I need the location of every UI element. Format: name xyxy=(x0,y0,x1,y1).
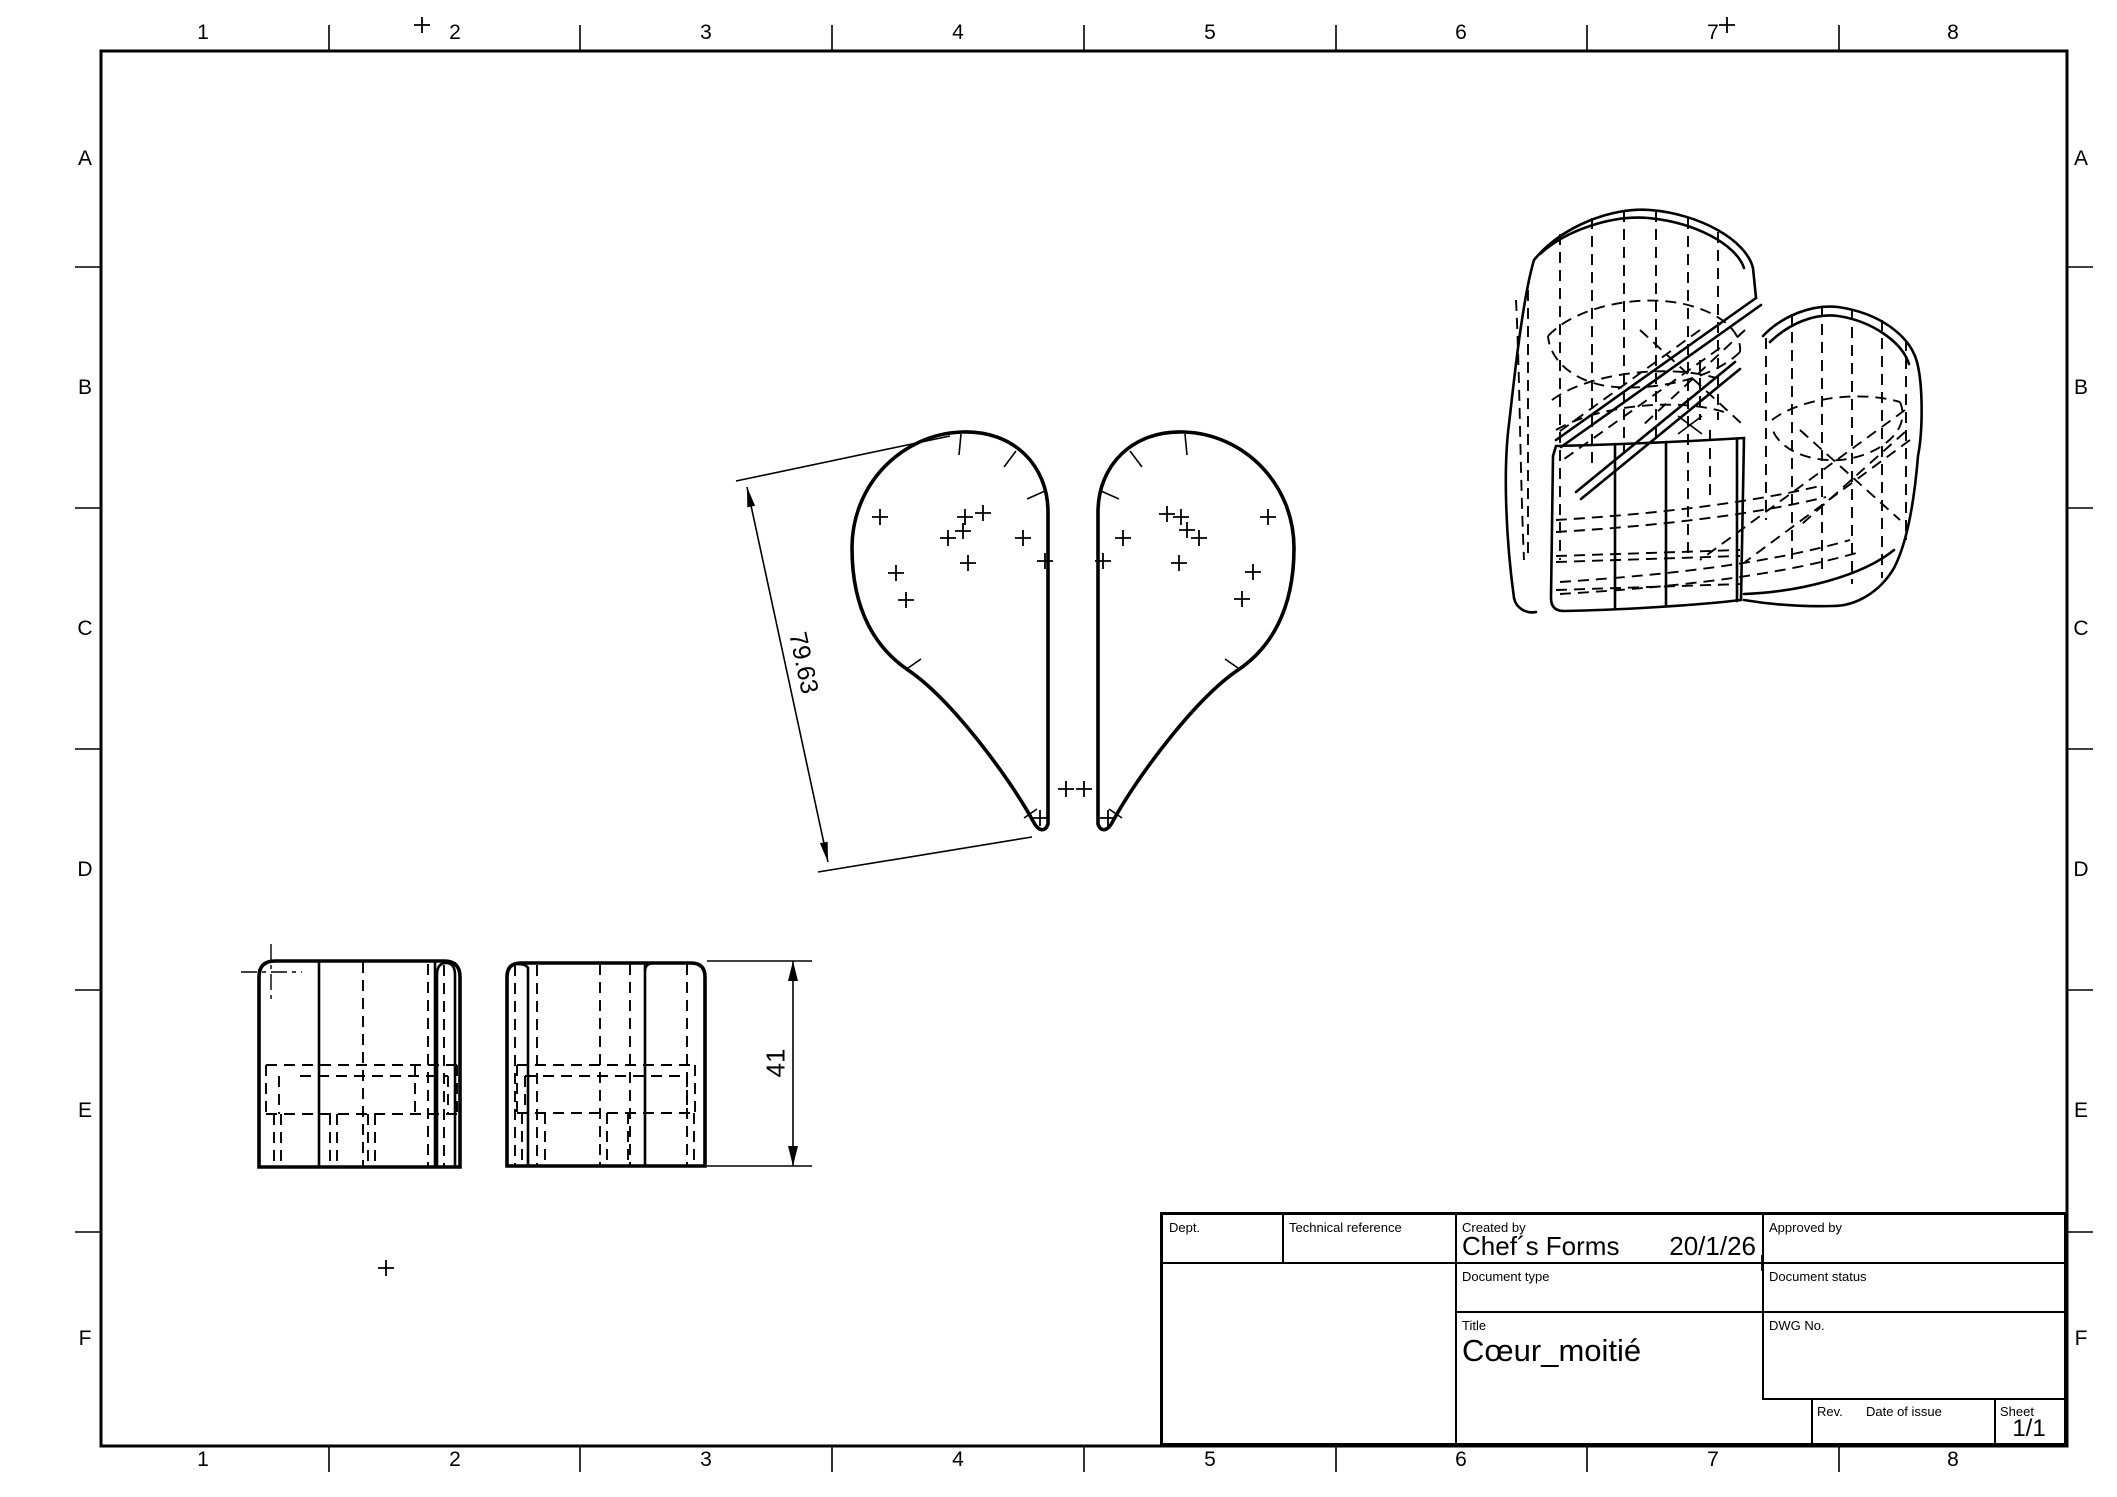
title-label: Title xyxy=(1462,1318,1486,1333)
grid-col-label: 2 xyxy=(449,21,461,45)
grid-col-label: 3 xyxy=(700,21,712,45)
grid-row-label: A xyxy=(2074,147,2088,171)
front-view-right xyxy=(507,963,705,1166)
date-of-issue-label: Date of issue xyxy=(1866,1404,1942,1419)
grid-row-label: C xyxy=(2073,617,2088,641)
grid-row-label: B xyxy=(2074,376,2088,400)
grid-row-label: E xyxy=(2074,1099,2088,1123)
control-point-marks xyxy=(872,505,1276,826)
grid-row-label: E xyxy=(78,1099,92,1123)
grid-col-label: 1 xyxy=(197,21,209,45)
dimension-value-height: 41 xyxy=(761,1049,792,1078)
grid-col-label: 7 xyxy=(1707,21,1719,45)
grid-col-label: 8 xyxy=(1947,1448,1959,1472)
approved-by-label: Approved by xyxy=(1769,1220,1842,1235)
grid-col-label: 4 xyxy=(952,1448,964,1472)
plan-view-heart-halves xyxy=(852,432,1294,830)
title-value: Cœur_moitié xyxy=(1462,1333,1641,1369)
grid-row-label: C xyxy=(77,617,92,641)
isometric-view xyxy=(1506,210,1922,613)
spline-segment-ticks xyxy=(908,434,1238,818)
grid-col-label: 4 xyxy=(952,21,964,45)
title-block: Dept. Technical reference Created by App… xyxy=(1160,1212,2067,1446)
teardrop-left-outline xyxy=(852,432,1048,830)
document-type-label: Document type xyxy=(1462,1269,1549,1284)
grid-col-label: 1 xyxy=(197,1448,209,1472)
teardrop-right-outline xyxy=(1098,432,1294,830)
grid-col-label: 7 xyxy=(1707,1448,1719,1472)
rev-label: Rev. xyxy=(1817,1404,1843,1419)
grid-col-label: 3 xyxy=(700,1448,712,1472)
dept-label: Dept. xyxy=(1169,1220,1200,1235)
grid-row-label: B xyxy=(78,376,92,400)
registration-marks xyxy=(378,17,1770,1276)
grid-row-label: D xyxy=(2073,858,2088,882)
sheet-value: 1/1 xyxy=(1999,1415,2059,1443)
grid-col-label: 5 xyxy=(1204,1448,1216,1472)
grid-row-label: D xyxy=(77,858,92,882)
grid-col-label: 5 xyxy=(1204,21,1216,45)
grid-row-label: F xyxy=(2075,1327,2088,1351)
dimension-79-63 xyxy=(736,436,1032,872)
technical-reference-label: Technical reference xyxy=(1289,1220,1402,1235)
grid-col-label: 2 xyxy=(449,1448,461,1472)
grid-row-label: F xyxy=(79,1327,92,1351)
grid-col-label: 6 xyxy=(1455,21,1467,45)
created-date-value: 20/1/26 xyxy=(1618,1231,1756,1262)
dimension-41 xyxy=(707,961,812,1166)
document-status-label: Document status xyxy=(1769,1269,1867,1284)
front-view-left xyxy=(241,944,460,1167)
centerline-cross xyxy=(241,944,302,1004)
drawing-sheet: 1 2 3 4 5 6 7 8 1 2 3 4 5 6 7 8 A B C D … xyxy=(0,0,2117,1497)
grid-col-label: 8 xyxy=(1947,21,1959,45)
grid-col-label: 6 xyxy=(1455,1448,1467,1472)
created-by-value: Chef´s Forms xyxy=(1462,1231,1619,1262)
dwg-no-label: DWG No. xyxy=(1769,1318,1825,1333)
grid-row-label: A xyxy=(78,147,92,171)
